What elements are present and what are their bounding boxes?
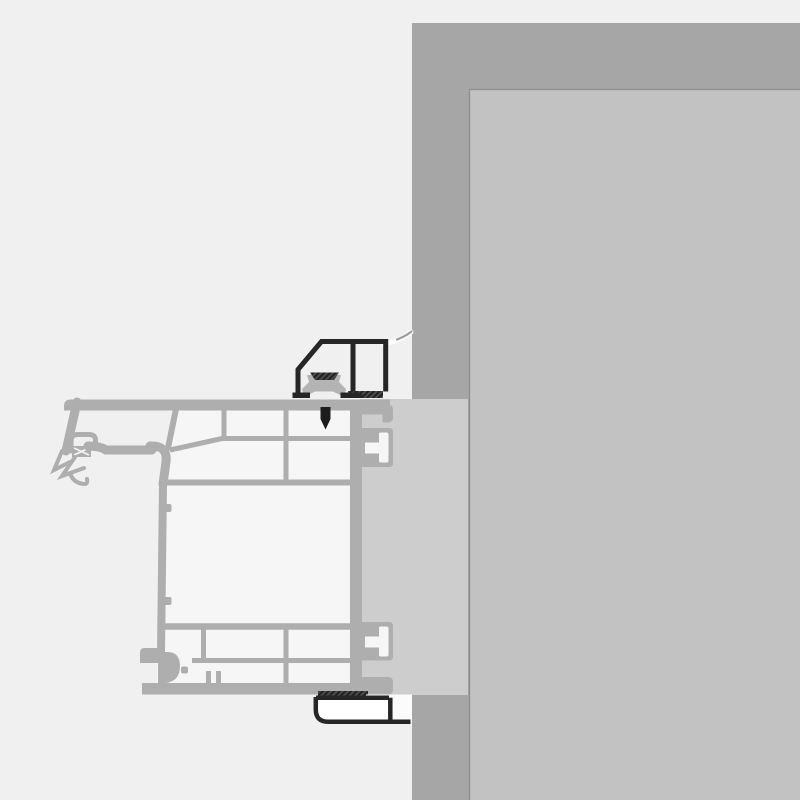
chamber-nub-bottom <box>163 597 172 605</box>
frame-flange-bar <box>88 446 152 450</box>
frame-left-wall <box>161 484 163 653</box>
section-drawing-canvas <box>0 0 800 800</box>
chamber-nub-top <box>163 504 172 512</box>
step-nub <box>181 667 188 674</box>
step-lip <box>140 648 158 663</box>
window-installation-section-drawing <box>0 0 800 800</box>
frame-right-wall <box>350 400 362 695</box>
bottom-installation-bracket <box>316 695 412 723</box>
screw-shaft <box>321 407 331 419</box>
frame-top-wall <box>64 400 390 411</box>
interior-wall-face <box>470 90 800 800</box>
frame-body-fill <box>142 403 352 692</box>
bracket-bottom-fill <box>318 699 388 721</box>
clip-cap-hatch <box>310 373 339 381</box>
